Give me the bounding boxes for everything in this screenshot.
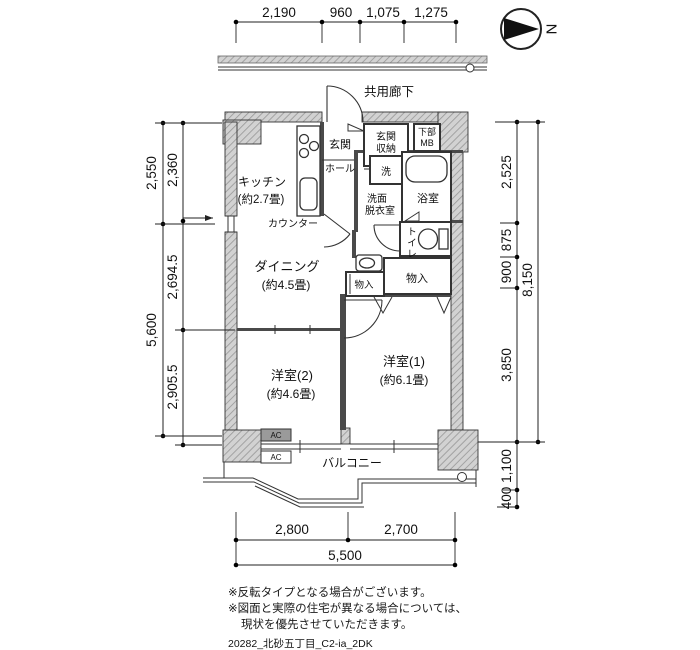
storage-large-label: 物入 (406, 271, 428, 285)
toilet-bowl-icon (419, 229, 438, 249)
dim-left-outer-1: 2,550 (144, 156, 159, 190)
corridor-label: 共用廊下 (364, 84, 414, 99)
dim-right-inner-2: 875 (499, 229, 514, 252)
bottom-dimension-lines: 2,800 2,700 5,500 (234, 512, 458, 567)
dim-top-2: 960 (330, 5, 353, 20)
dim-right-inner-3: 900 (499, 261, 514, 284)
genkan-storage-label-1: 玄関 (376, 130, 396, 143)
washroom-label-2: 脱衣室 (365, 204, 395, 217)
dim-bottom-2: 2,700 (384, 522, 418, 537)
storage-small-label: 物入 (354, 279, 374, 291)
floor-plan-page: 2,190 960 1,075 1,275 N 共用廊下 (0, 0, 700, 650)
toilet-label-1: ト (407, 227, 417, 238)
kitchen-window (225, 216, 237, 232)
drawing-file-id: 20282_北砂五丁目_C2-ia_2DK (228, 637, 373, 650)
common-corridor: 共用廊下 (218, 56, 487, 99)
mb-label-1: 下部 (418, 126, 436, 137)
dim-right-inner-5: 1,100 (499, 449, 514, 483)
toilet-label-2: イ (407, 238, 417, 249)
kitchen-size-label: (約2.7畳) (238, 192, 285, 206)
stove-burner-icon (310, 142, 319, 151)
balcony-drain-icon (458, 473, 467, 482)
dim-left-inner-1: 2,360 (165, 153, 180, 187)
notes-block: ※反転タイプとなる場合がございます。 ※図面と実際の住宅が異なる場合については、… (228, 585, 467, 650)
hall-label: ホール (325, 163, 355, 175)
toilet-tank-icon (439, 229, 448, 249)
dim-right-inner-4: 3,850 (499, 348, 514, 382)
washroom-label-1: 洗面 (367, 193, 387, 205)
meter-box: 下部 MB (414, 124, 440, 151)
bath-label: 浴室 (417, 191, 439, 205)
bathtub-icon (406, 156, 447, 182)
floor-plan-drawing: 2,190 960 1,075 1,275 N 共用廊下 (0, 0, 700, 650)
ac-upper-label: AC (270, 431, 281, 440)
bedroom1-size-label: (約6.1畳) (380, 372, 429, 387)
balcony-edge-line (255, 486, 364, 507)
stove-burner-icon (300, 149, 309, 158)
dim-bottom-1: 2,800 (275, 522, 309, 537)
kitchen-label: キッチン (238, 175, 286, 189)
north-compass: N (501, 9, 560, 49)
kitchen-sink-icon (300, 178, 317, 210)
dim-top-1: 2,190 (262, 5, 296, 20)
compass-north-label: N (543, 24, 560, 35)
ac-lower-label: AC (270, 453, 281, 462)
bedroom2-label: 洋室(2) (271, 368, 313, 383)
mb-label-2: MB (420, 138, 434, 148)
washer-label: 洗 (381, 166, 391, 178)
genkan-label: 玄関 (329, 137, 351, 151)
balcony-edge-line (203, 482, 476, 503)
note-line-2: ※図面と実際の住宅が異なる場合については、 (228, 601, 467, 615)
balcony-edge-line (203, 478, 476, 499)
corridor-drain-icon (466, 64, 474, 72)
stove-burner-icon (300, 135, 309, 144)
dim-top-4: 1,275 (414, 5, 448, 20)
dining-size-label: (約4.5畳) (262, 277, 311, 292)
dim-top-3: 1,075 (366, 5, 400, 20)
dim-right-inner-6: 400 (499, 487, 514, 510)
note-line-1: ※反転タイプとなる場合がございます。 (228, 585, 432, 599)
bathroom: 浴室 (402, 152, 451, 222)
dim-left-inner-2: 2,694.5 (165, 254, 180, 299)
counter-label: カウンター (268, 218, 318, 230)
balcony-label: バルコニー (322, 456, 382, 470)
right-dimension-lines: 2,525 875 900 3,850 1,100 400 8,150 (478, 120, 545, 510)
dim-right-outer: 8,150 (520, 263, 535, 297)
dim-left-inner-3: 2,905.5 (165, 364, 180, 409)
note-line-3: 現状を優先させていただきます。 (241, 617, 412, 631)
dim-right-inner-1: 2,525 (499, 155, 514, 189)
left-dimension-lines: 2,550 5,600 2,360 2,694.5 2,905.5 (144, 121, 235, 448)
dim-bottom-total: 5,500 (328, 548, 362, 563)
genkan-storage-label-2: 収納 (376, 142, 396, 155)
dim-left-outer-2: 5,600 (144, 313, 159, 347)
top-dimension-line: 2,190 960 1,075 1,275 (234, 5, 459, 43)
dining-label: ダイニング (254, 259, 319, 274)
bedroom2-size-label: (約4.6畳) (267, 386, 316, 401)
bedroom1-label: 洋室(1) (383, 354, 425, 369)
